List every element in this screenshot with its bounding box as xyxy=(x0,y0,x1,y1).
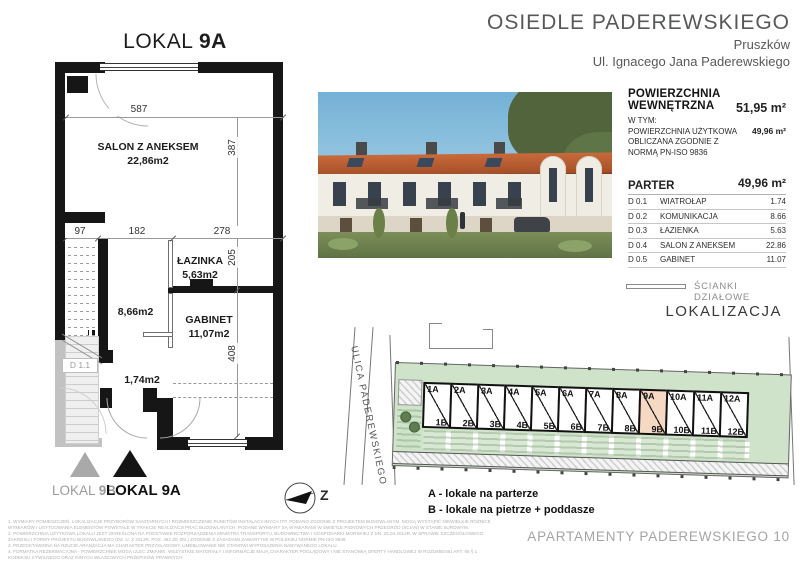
room-table-row: D 0.3 ŁAZIENKA 5.63 xyxy=(628,224,786,239)
room-gabinet-name: GABINET xyxy=(169,313,249,327)
site-unit: 4A 4B xyxy=(503,384,533,431)
header: OSIEDLE PADEREWSKIEGO Pruszków Ul. Ignac… xyxy=(420,10,790,70)
room-table: D 0.1 WIATROŁAP 1.74 D 0.2 KOMUNIKACJA 8… xyxy=(628,194,786,268)
marker-lokal-9a: LOKAL 9A xyxy=(106,482,181,499)
site-plan: ULICA PADEREWSKIEGO 1A 1B xyxy=(335,315,800,490)
photo-chimney xyxy=(356,142,367,156)
plan-title: LOKAL 9A xyxy=(90,30,260,54)
project-street: Ul. Ignacego Jana Paderewskiego xyxy=(420,53,790,70)
unit-label-b: 1B xyxy=(435,417,447,427)
room-code: D 0.2 xyxy=(628,212,660,221)
photo-car xyxy=(514,217,550,232)
room-code: D 0.1 xyxy=(628,197,660,206)
site-unit: 1A 1B xyxy=(422,382,452,429)
site-unit: 5A 5B xyxy=(530,385,560,432)
plan-title-number: 9A xyxy=(199,30,227,53)
units-row: 1A 1B 2A 2B 3A 3B 4A 4B xyxy=(424,382,749,438)
photo-balcony xyxy=(356,198,388,209)
brochure-page: LOKAL 9A xyxy=(0,0,800,572)
partition-wall-symbol xyxy=(626,284,686,289)
room-table-row: D 0.1 WIATROŁAP 1.74 xyxy=(628,195,786,210)
photo-small-tree xyxy=(446,208,458,238)
unit-label-a: 11A xyxy=(697,393,713,403)
neighbor-outline xyxy=(429,348,492,349)
street-name: ULICA PADEREWSKIEGO xyxy=(348,345,388,487)
area-summary: POWIERZCHNIA WEWNĘTRZNA 51,95 m² W TYM: … xyxy=(628,88,786,112)
dim-97: 97 xyxy=(65,226,95,238)
legend-b: B - lokale na pietrze + poddasze xyxy=(428,504,595,516)
usable-area-lines: POWIERZCHNIA UŻYTKOWAOBLICZANA ZGODNIE Z… xyxy=(628,127,737,159)
unit-label-a: 1A xyxy=(427,384,439,394)
door-tag: D 1.1 xyxy=(62,358,98,373)
photo-window xyxy=(473,182,486,206)
site-unit: 6A 6B xyxy=(557,386,587,433)
unit-label-a: 4A xyxy=(508,387,520,397)
building-photo xyxy=(318,92,612,258)
site-unit: 9A 9B xyxy=(638,389,668,436)
room-gabinet: GABINET 11,07m2 xyxy=(169,313,249,341)
neighbor-outline xyxy=(429,323,442,324)
photo-person xyxy=(460,212,465,229)
site-unit: 8A 8B xyxy=(611,388,641,435)
dim-408: 408 xyxy=(227,343,238,364)
disclaimer: 1. WYMIARY POMIESZCZEŃ, LOKALIZACJE PRZY… xyxy=(8,519,528,561)
room-komunikacja-area: 8,66m2 xyxy=(108,305,163,319)
room-salon-area: 22,86m2 xyxy=(88,154,208,168)
usable-area-line: OBLICZANA ZGODNIE Z xyxy=(628,137,737,148)
usable-area-block: W TYM: POWIERZCHNIA UŻYTKOWAOBLICZANA ZG… xyxy=(628,116,737,158)
unit-label-b: 6B xyxy=(570,422,582,432)
disclaimer-line: KODEKSU CYWILNEGO ORAZ INNYCH WŁAŚCIWYCH… xyxy=(8,555,528,561)
photo-tower-window xyxy=(549,168,557,202)
room-lazienka-name: ŁAZINKA xyxy=(160,254,240,268)
room-lazienka-area: 5,63m2 xyxy=(160,268,240,282)
room-area: 22.86 xyxy=(766,241,786,250)
compass-letter: Z xyxy=(320,487,329,503)
unit-label-b: 9B xyxy=(651,424,663,434)
unit-label-a: 12A xyxy=(724,393,741,404)
neighbor-outline xyxy=(483,329,492,330)
room-name: WIATROŁAP xyxy=(660,197,770,206)
room-salon-name: SALON Z ANEKSEM xyxy=(88,140,208,154)
unit-label-b: 5B xyxy=(543,421,555,431)
floor-row: PARTER 49,96 m² xyxy=(628,176,786,194)
unit-label-a: 3A xyxy=(481,386,493,396)
unit-label-b: 7B xyxy=(597,422,609,432)
marker-9a-number: 9A xyxy=(162,482,181,499)
usable-area-line: NORMĄ PN-ISO 9836 xyxy=(628,148,737,159)
unit-label-b: 4B xyxy=(516,420,528,430)
dim-278: 278 xyxy=(202,226,242,238)
floor-value: 49,96 m² xyxy=(738,176,786,190)
photo-balcony xyxy=(496,198,522,209)
triangle-9b-icon xyxy=(70,452,100,477)
dim-587: 587 xyxy=(109,104,169,116)
site-unit: 10A 10B xyxy=(665,390,695,437)
room-name: KOMUNIKACJA xyxy=(660,212,770,221)
photo-window xyxy=(333,182,346,206)
neighbor-outline xyxy=(429,323,430,348)
site-unit: 7A 7B xyxy=(584,387,614,434)
internal-area-value: 51,95 m² xyxy=(736,101,786,115)
neighbor-outline xyxy=(492,329,493,349)
photo-skylight xyxy=(417,158,435,167)
site-strip: 1A 1B 2A 2B 3A 3B 4A 4B xyxy=(392,362,792,478)
room-code: D 0.4 xyxy=(628,241,660,250)
room-area: 1.74 xyxy=(770,197,786,206)
room-wiatrolap-area: 1,74m2 xyxy=(118,373,166,387)
room-table-row: D 0.5 GABINET 11.07 xyxy=(628,253,786,268)
room-area: 5.63 xyxy=(770,226,786,235)
site-unit: 11A 11B xyxy=(692,390,722,437)
unit-label-b: 11B xyxy=(701,426,717,436)
project-city: Pruszków xyxy=(420,36,790,53)
room-area: 11.07 xyxy=(767,255,786,264)
photo-skylight xyxy=(485,158,503,167)
legend-a: A - lokale na parterze xyxy=(428,488,538,500)
unit-label-b: 3B xyxy=(489,419,501,429)
room-name: GABINET xyxy=(660,255,767,264)
dimline-587 xyxy=(65,117,283,118)
unit-label-a: 2A xyxy=(454,385,466,395)
photo-window xyxy=(403,182,416,206)
room-table-row: D 0.4 SALON Z ANEKSEM 22.86 xyxy=(628,239,786,254)
partition-legend: ŚCIANKI DZIAŁOWE xyxy=(694,281,786,303)
unit-label-a: 5A xyxy=(535,387,547,397)
unit-label-b: 2B xyxy=(462,418,474,428)
marker-9a-prefix: LOKAL xyxy=(106,482,162,499)
photo-bush xyxy=(558,240,592,252)
room-gabinet-area: 11,07m2 xyxy=(169,327,249,341)
fence-top xyxy=(396,361,791,376)
plan-title-prefix: LOKAL xyxy=(123,30,192,53)
marker-9b-prefix: LOKAL xyxy=(52,483,99,498)
floor-plan: 587 97 182 278 387 205 408 SALON Z ANEKS… xyxy=(50,58,290,458)
dim-182: 182 xyxy=(117,226,157,238)
usable-area-value: 49,96 m² xyxy=(752,126,786,136)
project-title: OSIEDLE PADEREWSKIEGO xyxy=(420,10,790,36)
unit-label-a: 7A xyxy=(589,389,601,399)
room-code: D 0.5 xyxy=(628,255,660,264)
room-salon: SALON Z ANEKSEM 22,86m2 xyxy=(88,140,208,168)
photo-skylight xyxy=(347,158,365,167)
site-unit: 3A 3B xyxy=(476,384,506,431)
compass-icon xyxy=(283,481,317,515)
unit-label-b: 10B xyxy=(673,425,690,436)
photo-bush xyxy=(328,238,358,250)
photo-small-tree xyxy=(373,208,385,238)
room-code: D 0.3 xyxy=(628,226,660,235)
unit-label-a: 10A xyxy=(670,392,687,403)
room-name: ŁAZIENKA xyxy=(660,226,770,235)
unit-label-b: 8B xyxy=(624,423,636,433)
triangle-9a-icon xyxy=(113,450,147,477)
dim-387: 387 xyxy=(227,137,238,158)
site-unit: 12A 12B xyxy=(719,391,749,438)
unit-label-b: 12B xyxy=(727,426,744,437)
site-unit: 2A 2B xyxy=(449,383,479,430)
room-table-row: D 0.2 KOMUNIKACJA 8.66 xyxy=(628,210,786,225)
floor-label: PARTER xyxy=(628,180,674,192)
room-area: 8.66 xyxy=(770,212,786,221)
usable-area-line: POWIERZCHNIA UŻYTKOWA xyxy=(628,127,737,138)
unit-label-a: 6A xyxy=(562,388,574,398)
left-garden xyxy=(396,407,421,448)
including-label: W TYM: xyxy=(628,116,737,127)
unit-label-a: 9A xyxy=(643,391,655,401)
room-lazienka: ŁAZINKA 5,63m2 xyxy=(160,254,240,282)
hatch-block xyxy=(398,379,423,406)
photo-tower-window xyxy=(585,168,593,202)
unit-label-a: 8A xyxy=(616,390,628,400)
room-name: SALON Z ANEKSEM xyxy=(660,241,766,250)
